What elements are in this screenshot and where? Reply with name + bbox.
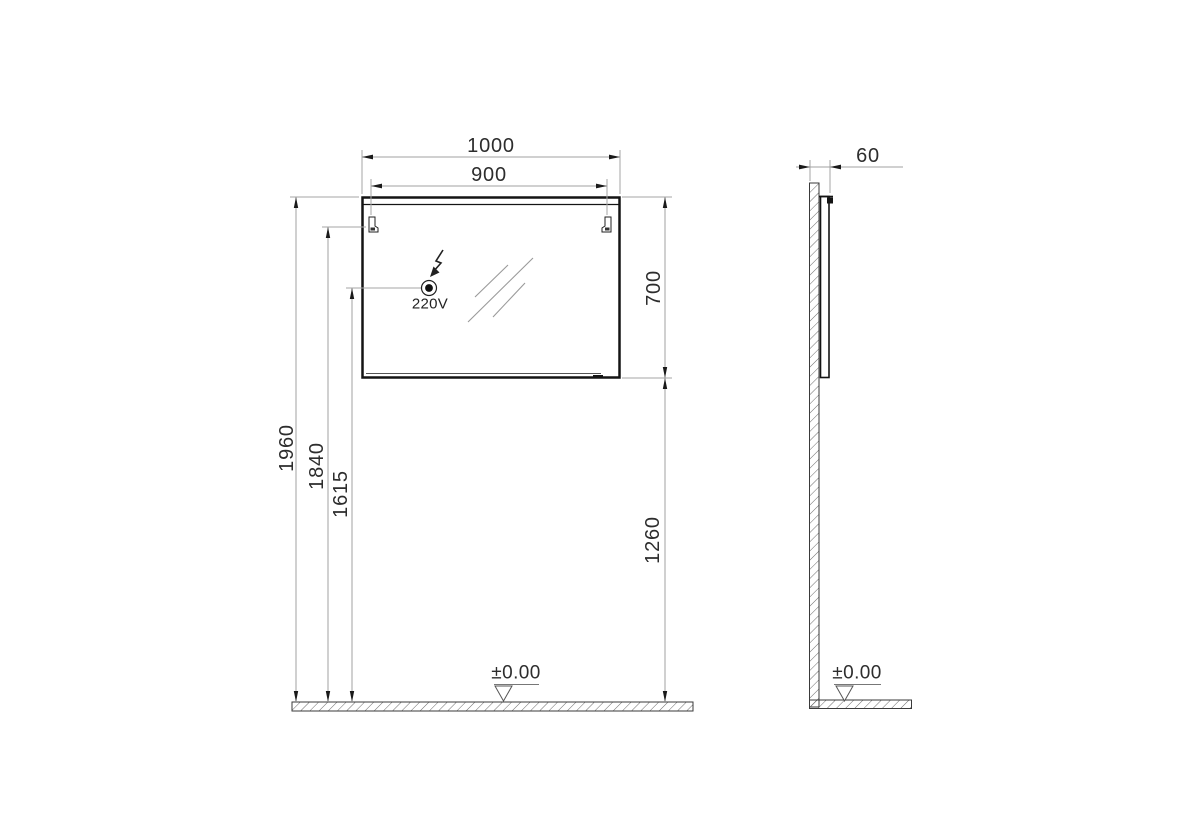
dim-width-total-label: 1000 <box>467 135 515 157</box>
dim-depth-label: 60 <box>856 145 880 167</box>
dim-height-mounting: 1840 <box>306 227 366 702</box>
voltage-label: 220V <box>412 296 448 313</box>
dim-width-mounting-label: 900 <box>471 164 507 186</box>
dim-height-socket: 1615 <box>330 288 354 702</box>
dim-height-mirror-bottom: 1260 <box>642 378 667 702</box>
front-view: 220V 1000 900 1960 <box>276 135 693 711</box>
floor-section-side <box>810 700 912 709</box>
wall-section-side <box>810 183 820 707</box>
dim-height-mounting-label: 1840 <box>306 442 328 490</box>
dim-height-total-label: 1960 <box>276 424 298 472</box>
drawing-sheet: 220V 1000 900 1960 <box>0 0 1190 840</box>
datum-triangle-icon-side <box>836 686 853 701</box>
dim-height-mirror: 700 <box>622 197 672 378</box>
floor-level-label-side: ±0.00 <box>832 663 881 684</box>
bracket-profile-mark <box>827 198 833 204</box>
floor-level-label-front: ±0.00 <box>491 663 540 684</box>
floor-level-datum-front: ±0.00 <box>491 663 540 702</box>
floor-level-datum-side: ±0.00 <box>832 663 881 702</box>
mirror-side-profile <box>819 197 833 378</box>
side-view: 60 ±0.00 <box>796 145 912 709</box>
dim-height-socket-label: 1615 <box>330 470 352 518</box>
datum-triangle-icon-front <box>495 686 512 701</box>
dim-height-mirror-bottom-label: 1260 <box>642 516 664 564</box>
technical-drawing: 220V 1000 900 1960 <box>0 0 1190 840</box>
floor-section-front <box>292 702 693 711</box>
mirror-bottom-cap-mark <box>593 375 603 379</box>
dim-height-mirror-label: 700 <box>643 270 665 306</box>
